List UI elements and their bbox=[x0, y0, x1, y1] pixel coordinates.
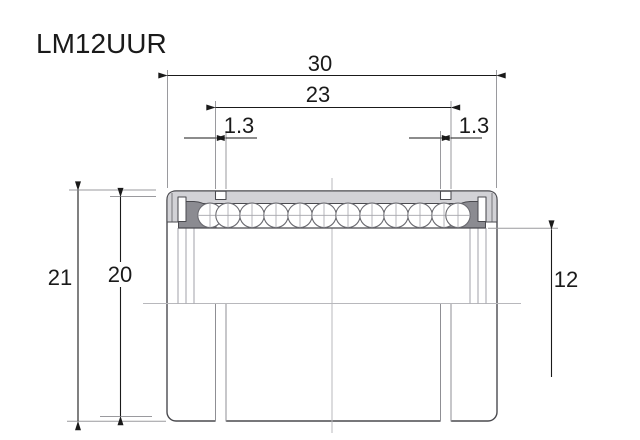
dim-label-20: 20 bbox=[108, 262, 132, 287]
dimension-groove-width-left: 1.3 bbox=[184, 113, 257, 189]
part-number-title: LM12UUR bbox=[36, 28, 167, 59]
dimension-outer-diameter: 21 bbox=[48, 190, 166, 421]
ball bbox=[264, 203, 288, 227]
dim-label-12: 12 bbox=[554, 267, 578, 292]
ball bbox=[288, 203, 312, 227]
ball bbox=[446, 203, 470, 227]
dimension-sleeve-diameter: 20 bbox=[100, 197, 156, 417]
ball bbox=[408, 203, 432, 227]
bearing-technical-drawing: LM12UUR bbox=[0, 0, 640, 440]
ball bbox=[360, 203, 384, 227]
dim-label-21: 21 bbox=[48, 265, 72, 290]
ball bbox=[240, 203, 264, 227]
bottom-gap-right bbox=[441, 419, 452, 423]
ball bbox=[336, 203, 360, 227]
dimension-groove-width-right: 1.3 bbox=[409, 113, 489, 189]
dim-label-23: 23 bbox=[306, 82, 330, 107]
bottom-gap-left bbox=[216, 419, 227, 423]
dim-label-1.3-right: 1.3 bbox=[459, 113, 490, 138]
ball bbox=[216, 203, 240, 227]
dimension-bore-diameter: 12 bbox=[488, 228, 578, 377]
ball bbox=[312, 203, 336, 227]
dimension-outer-length: 30 bbox=[168, 51, 497, 188]
dim-label-1.3-left: 1.3 bbox=[224, 113, 255, 138]
dim-label-30: 30 bbox=[308, 51, 332, 76]
bearing-body bbox=[143, 178, 521, 433]
ball bbox=[384, 203, 408, 227]
